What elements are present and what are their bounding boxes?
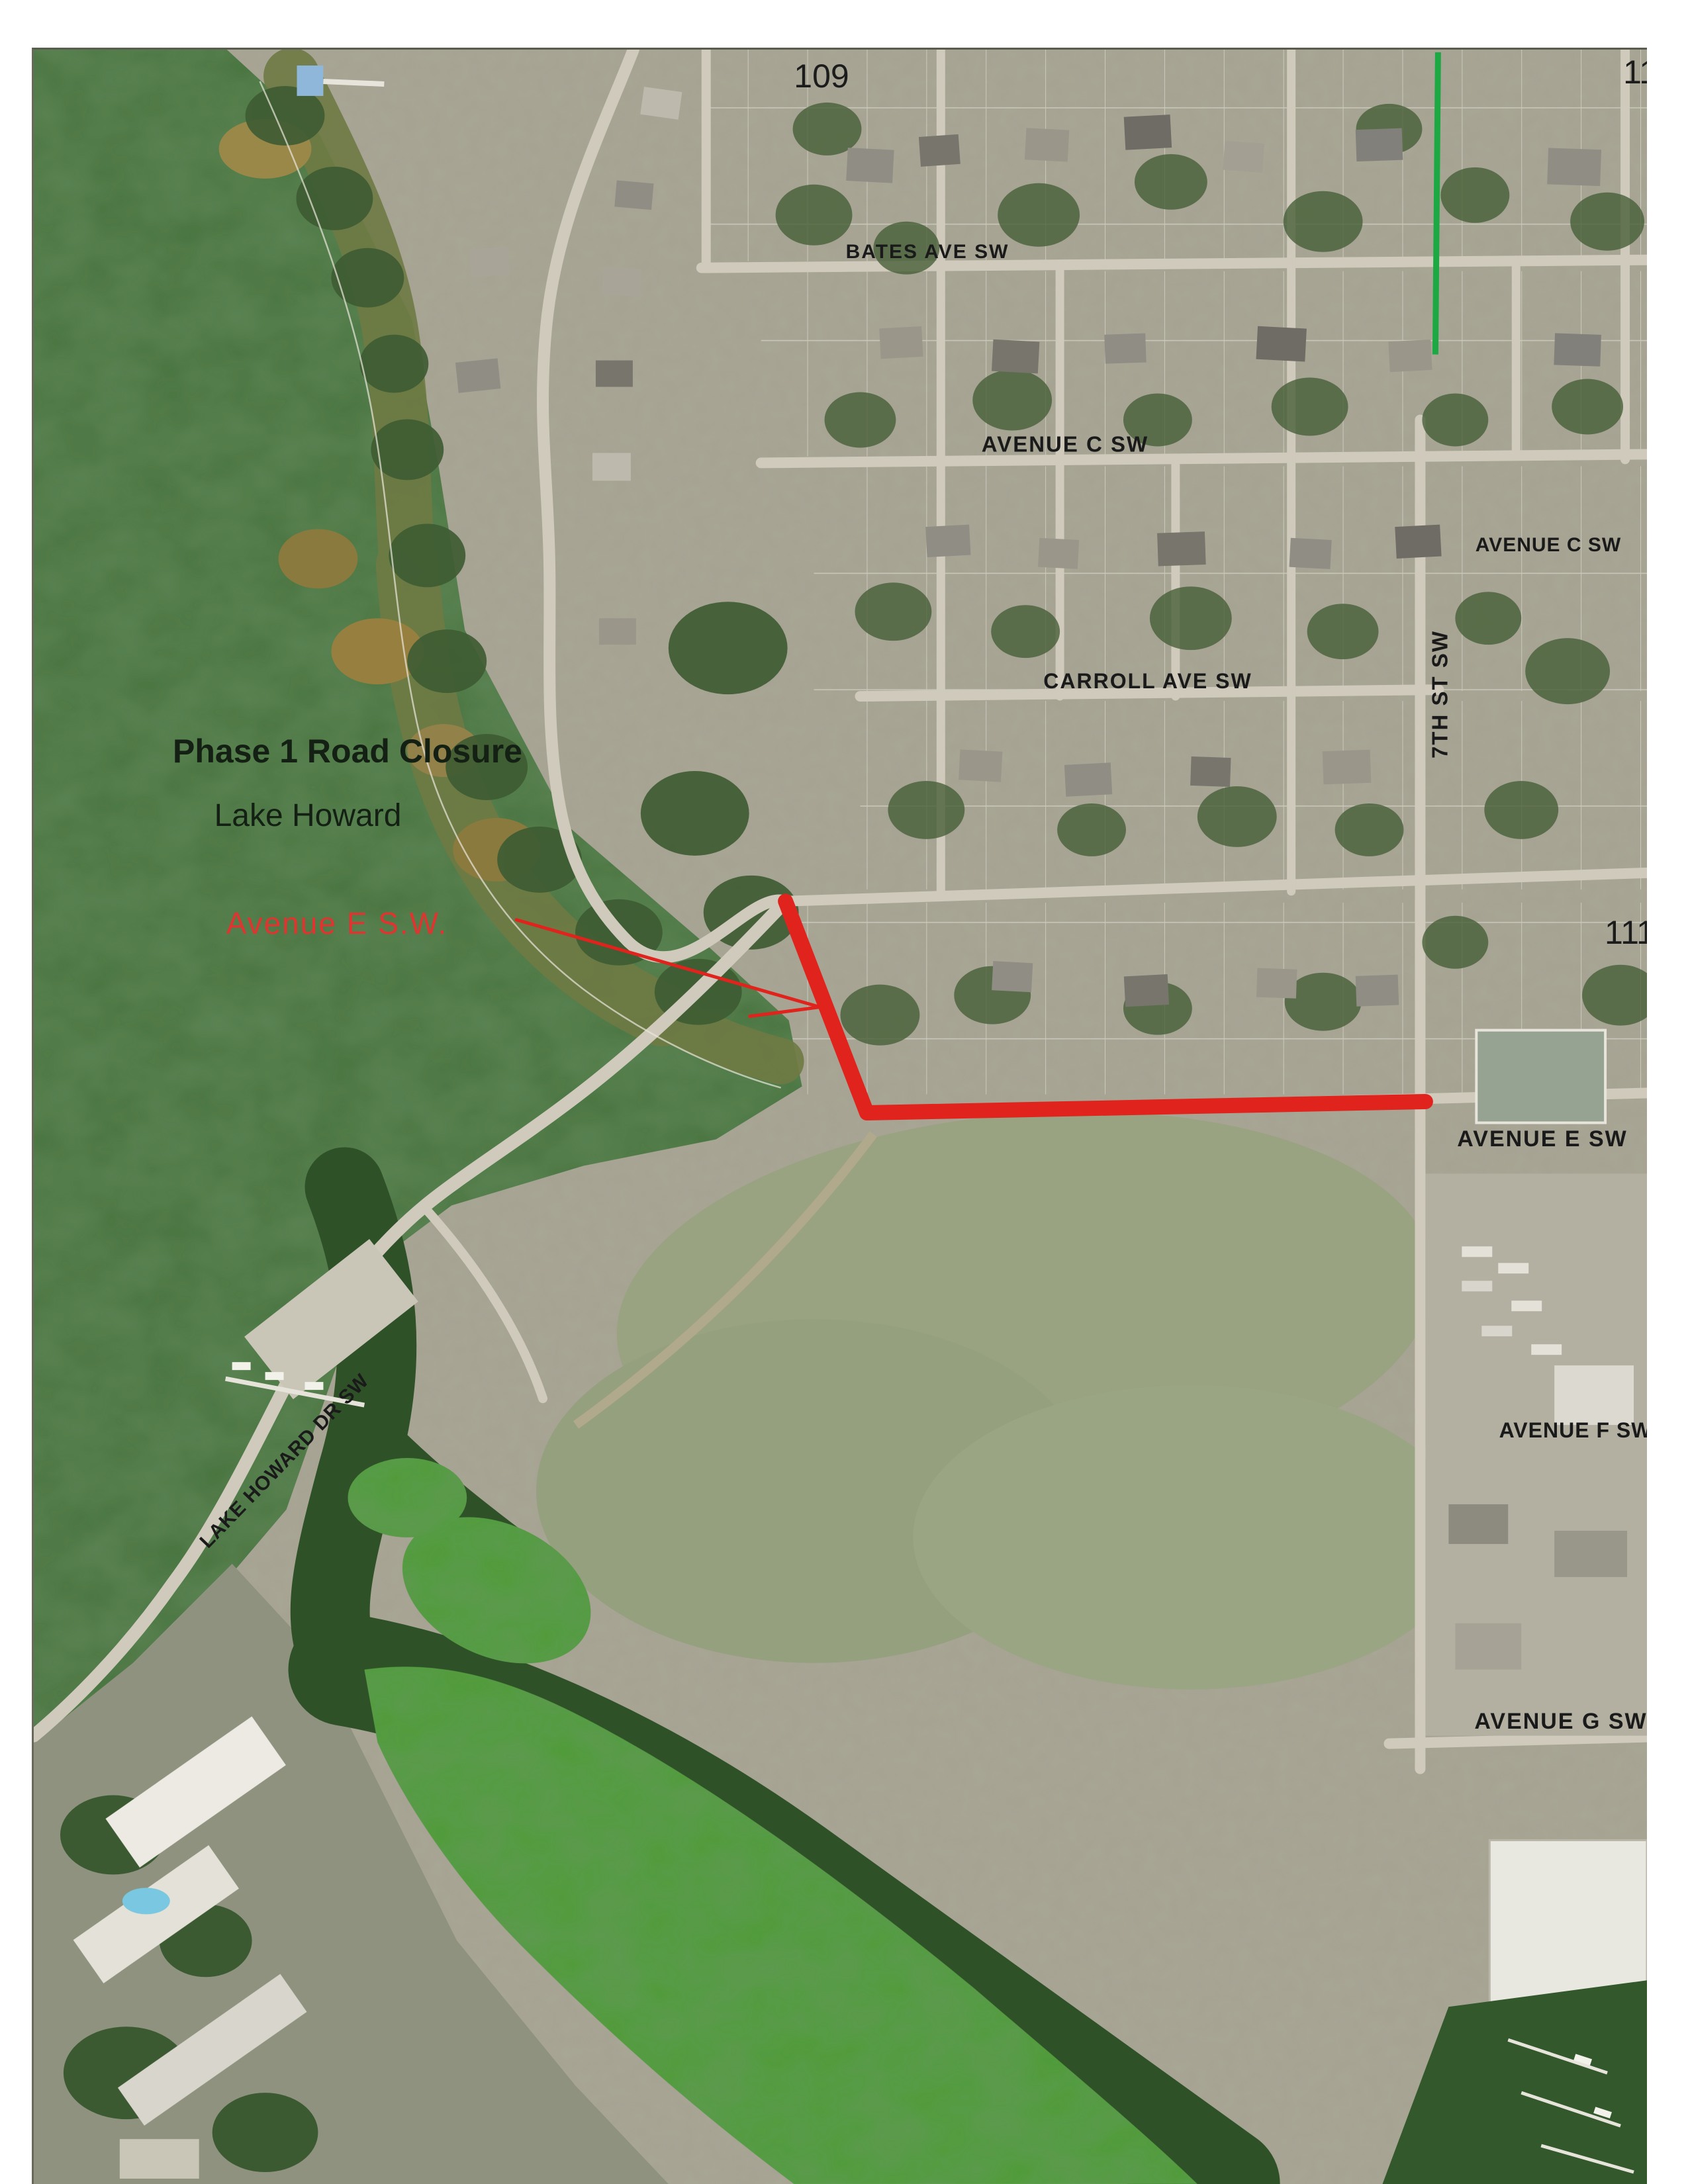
street-label-avenue-e: AVENUE E SW <box>1457 1128 1628 1150</box>
parcel-number-111: 111 <box>1605 916 1647 949</box>
map-title-line1: Phase 1 Road Closure <box>173 735 522 768</box>
avenue-g-road <box>1389 1737 1647 1744</box>
street-label-carroll: CARROLL AVE SW <box>1043 670 1252 692</box>
industrial-yard <box>1425 1173 1647 1735</box>
green-roof-building <box>1476 1030 1605 1123</box>
street-label-avenue-g: AVENUE G SW <box>1474 1710 1647 1733</box>
scanned-map-page: Phase 1 Road Closure Lake Howard Avenue … <box>0 0 1688 2184</box>
street-label-bates: BATES AVE SW <box>846 242 1009 262</box>
parcel-number-109: 109 <box>794 60 849 93</box>
street-label-avenue-c-right: AVENUE C SW <box>1476 535 1621 555</box>
aerial-photo-art <box>34 50 1647 2184</box>
closure-street-label: Avenue E S.W. <box>226 908 448 938</box>
street-label-avenue-f: AVENUE F SW <box>1499 1420 1647 1441</box>
street-label-avenue-c-mid: AVENUE C SW <box>982 433 1149 455</box>
map-title-line2: Lake Howard <box>214 800 402 832</box>
aerial-photo: Phase 1 Road Closure Lake Howard Avenue … <box>32 48 1647 2184</box>
street-label-seventh-st: 7TH ST SW <box>1429 630 1451 758</box>
green-survey-line <box>1435 52 1438 355</box>
parcel-number-110: 110 <box>1623 56 1647 89</box>
